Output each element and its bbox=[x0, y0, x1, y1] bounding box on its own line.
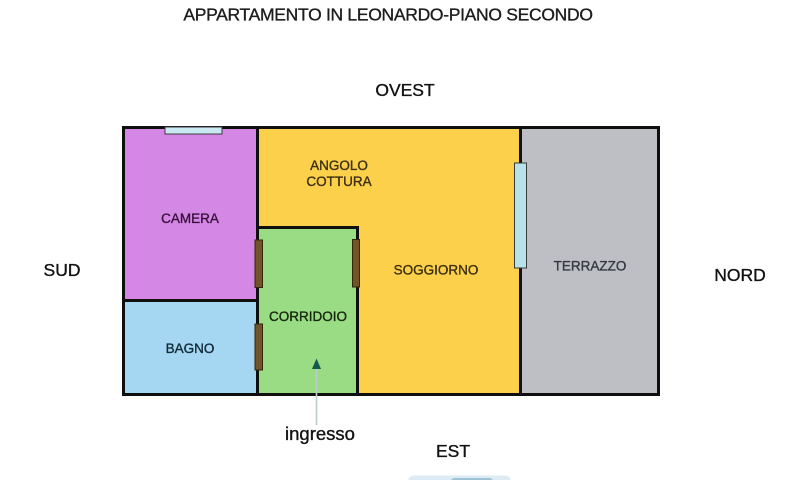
svg-text:NORD: NORD bbox=[714, 265, 766, 285]
svg-text:BAGNO: BAGNO bbox=[166, 341, 215, 356]
svg-text:CORRIDOIO: CORRIDOIO bbox=[269, 309, 347, 324]
svg-text:OVEST: OVEST bbox=[375, 80, 435, 100]
svg-text:EST: EST bbox=[436, 441, 470, 461]
svg-text:COTTURA: COTTURA bbox=[306, 174, 371, 189]
svg-text:CAMERA: CAMERA bbox=[161, 211, 219, 226]
svg-text:APPARTAMENTO IN LEONARDO-PIANO: APPARTAMENTO IN LEONARDO-PIANO SECONDO bbox=[183, 5, 592, 25]
svg-text:ingresso: ingresso bbox=[285, 423, 355, 444]
svg-text:SOGGIORNO: SOGGIORNO bbox=[394, 263, 479, 278]
svg-text:SUD: SUD bbox=[44, 260, 81, 280]
svg-text:ANGOLO: ANGOLO bbox=[310, 158, 368, 173]
svg-text:TERRAZZO: TERRAZZO bbox=[554, 258, 627, 273]
